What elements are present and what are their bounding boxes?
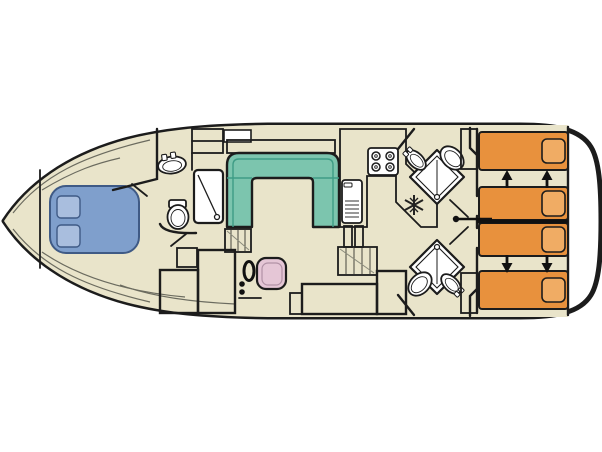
bed-pillow [542,139,565,163]
bed-pillow [57,196,80,218]
shower-drain [435,245,440,250]
stove-icon [368,148,398,175]
floor-plan-canvas [0,0,602,452]
galley-sink [342,180,362,223]
boat-floor-plan [0,0,602,452]
bed-pillow [542,278,565,302]
shower-drain [215,215,220,220]
bed-pillow [542,191,565,216]
helm-control-knob [239,281,245,287]
bed-pillow [57,225,80,247]
helm-control-knob [239,289,245,295]
shower-drain [435,195,440,200]
forward-toilet [168,200,189,229]
partition-handle-knob [453,216,459,222]
bed-pillow [542,227,565,252]
